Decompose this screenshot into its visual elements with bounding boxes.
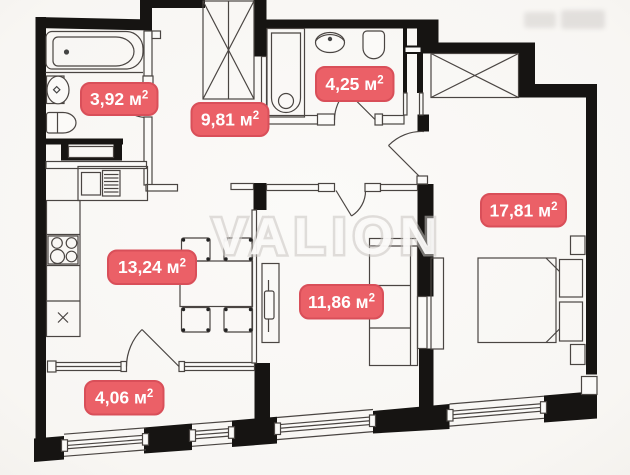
svg-text:4,06 м2: 4,06 м2	[95, 388, 153, 408]
svg-text:VALION: VALION	[212, 208, 444, 266]
svg-text:9,81 м2: 9,81 м2	[201, 110, 259, 130]
svg-text:17,81 м2: 17,81 м2	[489, 200, 557, 220]
svg-text:3,92 м2: 3,92 м2	[90, 89, 148, 109]
svg-text:13,24 м2: 13,24 м2	[118, 257, 186, 277]
svg-text:4,25 м2: 4,25 м2	[325, 74, 383, 94]
svg-text:11,86 м2: 11,86 м2	[308, 292, 375, 312]
